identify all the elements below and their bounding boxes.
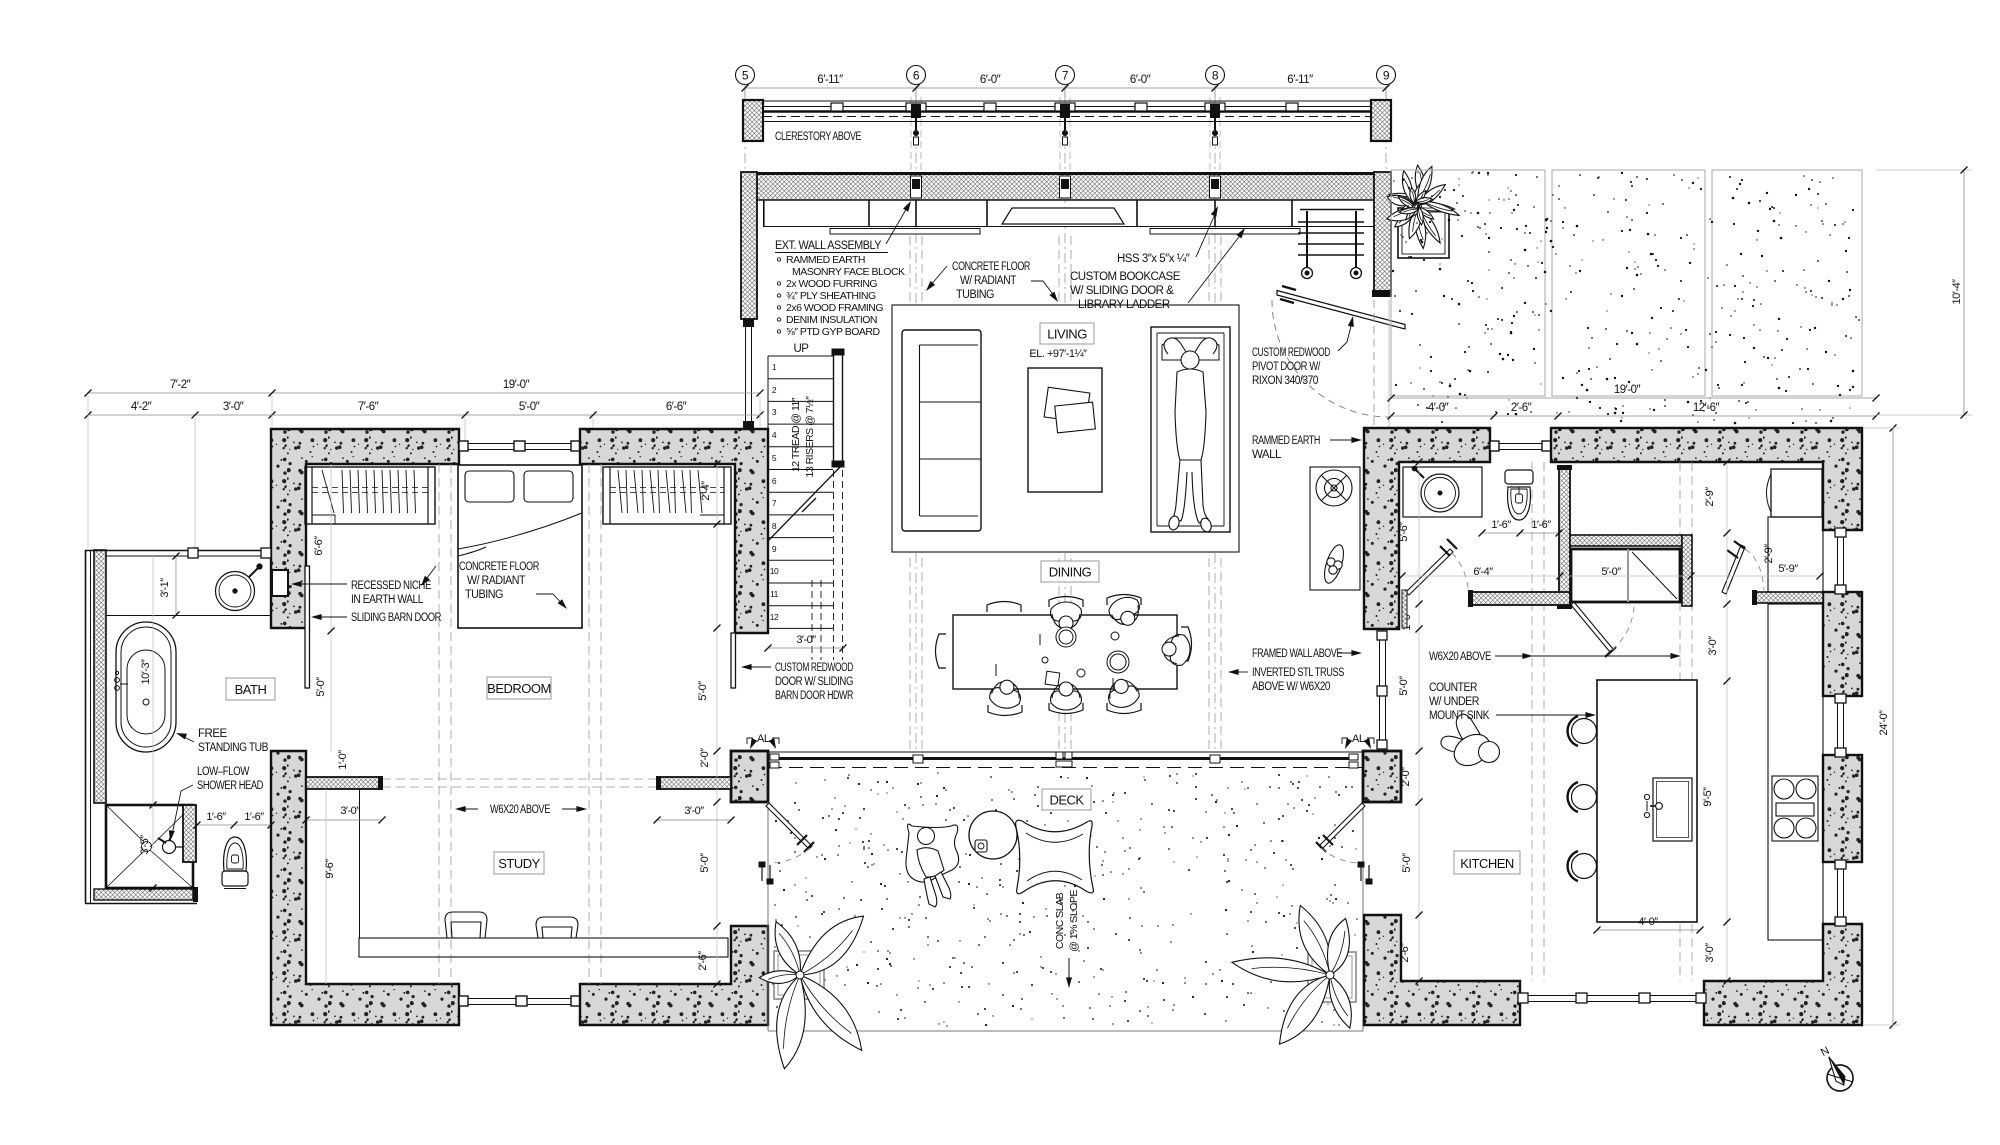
svg-text:W/ SLIDING DOOR &: W/ SLIDING DOOR & — [1070, 285, 1174, 297]
svg-text:3′-5″: 3′-5″ — [139, 835, 151, 855]
svg-text:6′-6″: 6′-6″ — [313, 536, 325, 556]
svg-text:EL. +97′-1¼″: EL. +97′-1¼″ — [1029, 348, 1087, 360]
svg-text:6′-11″: 6′-11″ — [817, 74, 843, 86]
svg-text:CONC SLAB: CONC SLAB — [1054, 892, 1066, 949]
svg-text:LIBRARY LADDER: LIBRARY LADDER — [1078, 299, 1170, 311]
svg-text:3′-0″: 3′-0″ — [684, 805, 704, 817]
svg-text:12 TREAD @ 11″: 12 TREAD @ 11″ — [790, 397, 802, 472]
svg-text:BEDROOM: BEDROOM — [487, 681, 551, 696]
svg-text:LIVING: LIVING — [1047, 327, 1087, 342]
svg-text:6: 6 — [913, 69, 920, 83]
svg-text:W6X20 ABOVE: W6X20 ABOVE — [490, 804, 551, 816]
svg-text:HSS 3″x 5″x ¼″: HSS 3″x 5″x ¼″ — [1117, 253, 1190, 265]
svg-text:DOOR W/ SLIDING: DOOR W/ SLIDING — [775, 676, 853, 688]
svg-text:2′-6″: 2′-6″ — [697, 951, 709, 971]
svg-text:9′-5″: 9′-5″ — [1702, 787, 1714, 807]
svg-text:1′-6″: 1′-6″ — [1491, 519, 1511, 531]
svg-text:10′-4″: 10′-4″ — [1951, 279, 1963, 305]
svg-text:DINING: DINING — [1049, 565, 1092, 580]
svg-text:BATH: BATH — [235, 682, 267, 697]
svg-text:EXT. WALL ASSEMBLY: EXT. WALL ASSEMBLY — [775, 240, 882, 252]
svg-text:2′-0″: 2′-0″ — [1400, 767, 1412, 787]
svg-text:9′-6″: 9′-6″ — [324, 859, 336, 879]
svg-text:7: 7 — [1062, 69, 1069, 83]
svg-text:CUSTOM REDWOOD: CUSTOM REDWOOD — [1252, 347, 1330, 359]
svg-text:RECESSED NICHE: RECESSED NICHE — [351, 580, 432, 592]
svg-text:19′-0″: 19′-0″ — [503, 379, 530, 391]
svg-text:DENIM INSULATION: DENIM INSULATION — [786, 314, 877, 326]
svg-text:2′-9″: 2′-9″ — [1763, 544, 1775, 564]
svg-text:STANDING TUB: STANDING TUB — [198, 742, 269, 754]
svg-text:FRAMED WALL ABOVE: FRAMED WALL ABOVE — [1252, 648, 1343, 660]
svg-text:W/ UNDER: W/ UNDER — [1429, 696, 1479, 708]
svg-text:5′-0″: 5′-0″ — [697, 681, 709, 701]
svg-text:5′-0″: 5′-0″ — [519, 401, 540, 413]
svg-text:CONCRETE FLOOR: CONCRETE FLOOR — [952, 261, 1030, 273]
svg-text:BARN DOOR HDWR: BARN DOOR HDWR — [775, 690, 853, 702]
svg-text:2′-0″: 2′-0″ — [699, 748, 711, 768]
svg-text:8: 8 — [1212, 69, 1219, 83]
svg-text:3′-0″: 3′-0″ — [1704, 943, 1716, 963]
svg-text:AL: AL — [1352, 733, 1365, 745]
svg-text:5′-0″: 5′-0″ — [1601, 566, 1621, 578]
svg-text:12′-6″: 12′-6″ — [1693, 402, 1720, 414]
svg-text:2x WOOD FURRING: 2x WOOD FURRING — [786, 278, 877, 290]
svg-text:1′-6″: 1′-6″ — [244, 811, 264, 823]
svg-text:W/ RADIANT: W/ RADIANT — [960, 275, 1016, 287]
svg-text:AL: AL — [757, 733, 770, 745]
svg-text:24′-0″: 24′-0″ — [1878, 710, 1890, 736]
svg-text:UP: UP — [794, 343, 810, 355]
svg-text:TUBING: TUBING — [956, 289, 995, 301]
svg-text:2′-9″: 2′-9″ — [1704, 487, 1716, 507]
svg-text:COUNTER: COUNTER — [1429, 682, 1477, 694]
svg-text:LOW–FLOW: LOW–FLOW — [197, 766, 250, 778]
svg-text:2′-6″: 2′-6″ — [1399, 943, 1411, 963]
svg-text:@ 1% SLOPE: @ 1% SLOPE — [1068, 890, 1080, 952]
svg-text:7′-6″: 7′-6″ — [358, 401, 379, 413]
svg-text:3′-0″: 3′-0″ — [1707, 636, 1719, 656]
svg-text:6′-0″: 6′-0″ — [980, 74, 1001, 86]
svg-text:INVERTED STL TRUSS: INVERTED STL TRUSS — [1252, 667, 1345, 679]
svg-text:CUSTOM REDWOOD: CUSTOM REDWOOD — [775, 662, 853, 674]
svg-text:RAMMED EARTH: RAMMED EARTH — [1252, 435, 1320, 447]
svg-text:CONCRETE FLOOR: CONCRETE FLOOR — [459, 561, 539, 573]
svg-text:5′-0″: 5′-0″ — [699, 853, 711, 873]
svg-text:STUDY: STUDY — [498, 856, 540, 871]
svg-text:4′-2″: 4′-2″ — [131, 401, 152, 413]
svg-text:DECK: DECK — [1049, 793, 1084, 808]
svg-text:FREE: FREE — [198, 728, 228, 740]
svg-text:2′-6″: 2′-6″ — [1511, 402, 1532, 414]
svg-text:RAMMED EARTH: RAMMED EARTH — [786, 254, 865, 266]
svg-text:SHOWER HEAD: SHOWER HEAD — [197, 780, 263, 792]
svg-text:2′-4″: 2′-4″ — [700, 481, 712, 501]
svg-text:W/ RADIANT: W/ RADIANT — [467, 575, 525, 587]
svg-text:5′-6″: 5′-6″ — [1398, 522, 1410, 542]
svg-text:RIXON 340/370: RIXON 340/370 — [1252, 375, 1318, 387]
svg-text:5′-0″: 5′-0″ — [315, 677, 327, 697]
svg-text:4′-0″: 4′-0″ — [1638, 916, 1658, 928]
svg-text:3′-1″: 3′-1″ — [159, 578, 171, 598]
svg-text:KITCHEN: KITCHEN — [1460, 856, 1514, 871]
svg-text:3′-0″: 3′-0″ — [796, 634, 816, 646]
svg-text:6′-0″: 6′-0″ — [1130, 74, 1151, 86]
svg-text:MASONRY FACE BLOCK: MASONRY FACE BLOCK — [792, 266, 905, 278]
svg-text:5′-9″: 5′-9″ — [1778, 563, 1798, 575]
svg-text:9: 9 — [1383, 69, 1390, 83]
svg-text:10′-3″: 10′-3″ — [140, 659, 152, 685]
svg-text:CLERESTORY ABOVE: CLERESTORY ABOVE — [775, 131, 862, 143]
svg-text:7′-2″: 7′-2″ — [170, 379, 191, 391]
svg-text:3′-0″: 3′-0″ — [340, 805, 360, 817]
svg-text:10: 10 — [770, 566, 779, 576]
svg-text:¾″ PLY SHEATHING: ¾″ PLY SHEATHING — [786, 290, 876, 302]
svg-text:4′-0″: 4′-0″ — [1428, 402, 1449, 414]
svg-text:12: 12 — [770, 612, 779, 622]
svg-text:13 RISERS @ 7½″: 13 RISERS @ 7½″ — [804, 396, 816, 478]
svg-text:PIVOT DOOR W/: PIVOT DOOR W/ — [1252, 361, 1321, 373]
svg-text:WALL: WALL — [1252, 449, 1282, 461]
svg-text:MOUNT SINK: MOUNT SINK — [1429, 710, 1490, 722]
svg-text:2x6 WOOD FRAMING: 2x6 WOOD FRAMING — [786, 302, 883, 314]
svg-text:1′-6″: 1′-6″ — [206, 811, 226, 823]
svg-text:3′-0″: 3′-0″ — [223, 401, 244, 413]
svg-text:IN EARTH WALL: IN EARTH WALL — [351, 594, 424, 606]
svg-text:6′-4″: 6′-4″ — [1473, 566, 1493, 578]
svg-text:5: 5 — [742, 69, 749, 83]
svg-text:⅝″ PTD GYP BOARD: ⅝″ PTD GYP BOARD — [786, 326, 880, 338]
svg-text:6′-6″: 6′-6″ — [666, 401, 687, 413]
svg-text:1′-0″: 1′-0″ — [337, 750, 349, 770]
svg-text:1′-6″: 1′-6″ — [1531, 519, 1551, 531]
svg-text:5′-0″: 5′-0″ — [1401, 853, 1413, 873]
svg-text:5′-0″: 5′-0″ — [1398, 676, 1410, 696]
svg-text:CUSTOM BOOKCASE: CUSTOM BOOKCASE — [1070, 271, 1181, 283]
svg-text:SLIDING BARN DOOR: SLIDING BARN DOOR — [351, 612, 441, 624]
svg-text:19′-0″: 19′-0″ — [1614, 384, 1641, 396]
svg-text:6′-11″: 6′-11″ — [1287, 74, 1313, 86]
svg-text:TUBING: TUBING — [465, 589, 504, 601]
svg-text:ABOVE W/ W6X20: ABOVE W/ W6X20 — [1252, 681, 1330, 693]
svg-text:11: 11 — [770, 589, 779, 599]
svg-text:W6X20 ABOVE: W6X20 ABOVE — [1429, 651, 1492, 663]
